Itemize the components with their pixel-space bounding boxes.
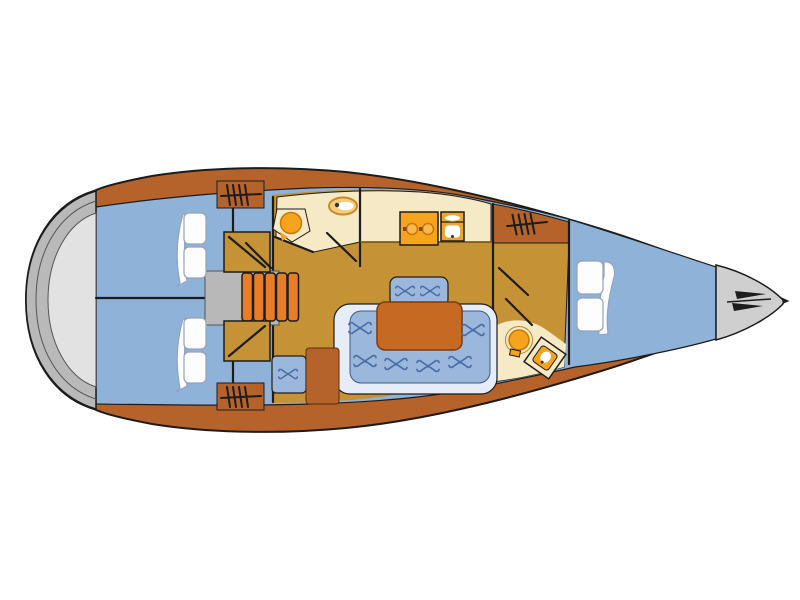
aft-cabin-berth-starboard — [176, 318, 206, 392]
companionway-steps — [242, 273, 299, 321]
stove-icon — [400, 212, 438, 245]
pillow — [184, 247, 206, 278]
saloon-table — [377, 302, 462, 350]
yacht-floor-plan-page — [0, 0, 800, 600]
yacht-floor-plan — [0, 0, 800, 600]
pillow — [184, 213, 206, 244]
stove-knob — [403, 227, 407, 231]
pillow — [577, 261, 603, 294]
step — [242, 273, 253, 321]
pillow — [577, 298, 603, 331]
toilet-icon — [329, 198, 357, 215]
step — [277, 273, 288, 321]
pillow — [184, 352, 206, 383]
aft-cabin-berth-port — [176, 213, 206, 287]
step — [265, 273, 276, 321]
step — [254, 273, 265, 321]
pillow — [184, 318, 206, 349]
sink-icon — [441, 212, 464, 241]
chart-table-block — [306, 348, 339, 404]
step — [288, 273, 299, 321]
stove-knob — [419, 227, 423, 231]
